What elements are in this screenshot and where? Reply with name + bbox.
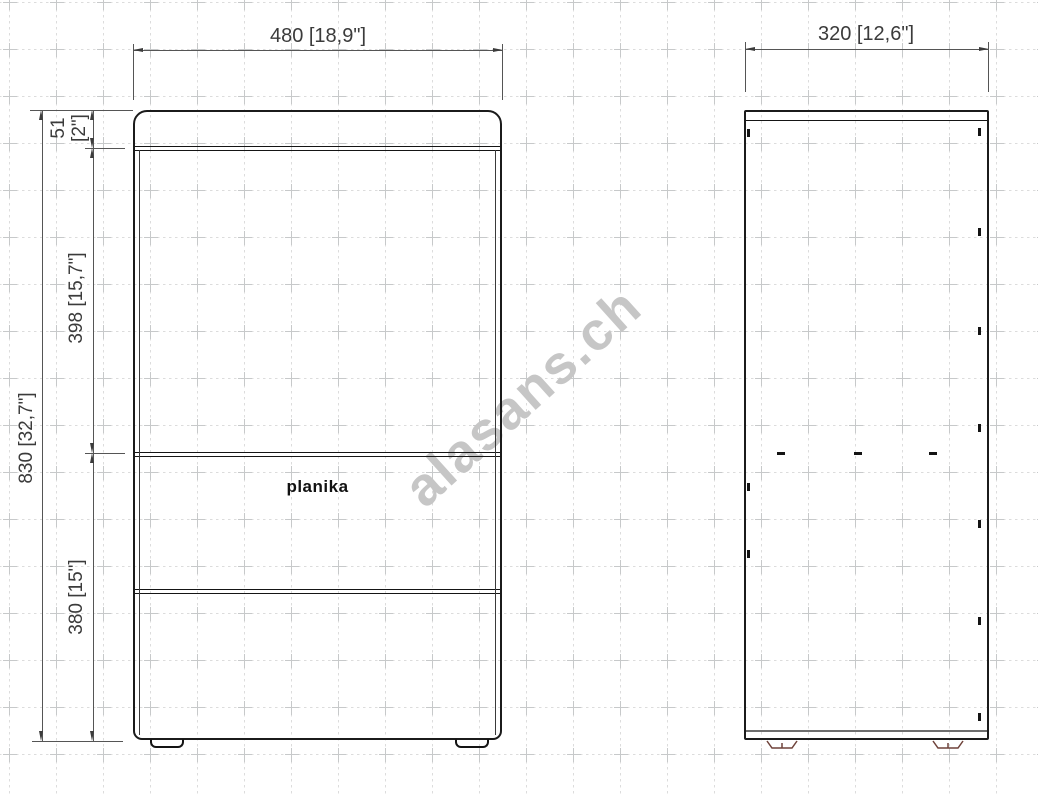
dim-label-bottom-section: 380 [15"] (66, 542, 88, 652)
dim-arrow-icon (493, 48, 503, 52)
dim-arrow-icon (979, 47, 989, 51)
front-foot-left (150, 739, 184, 748)
fixing-mark (777, 452, 785, 455)
dim-arrow-icon (39, 110, 43, 120)
dim-label-middle-section: 398 [15,7"] (66, 233, 88, 363)
dim-label-depth: 320 [12,6"] (766, 23, 966, 46)
front-view-outline: planika (133, 110, 502, 740)
front-top-panel-divider (135, 146, 500, 151)
side-foot-right (932, 740, 964, 751)
dim-label-top-section: 51 [2"] (48, 108, 90, 148)
vent-slot (978, 713, 981, 721)
vent-slot (978, 128, 981, 136)
front-inner-edge-left (139, 150, 140, 735)
dim-arrow-icon (90, 443, 94, 453)
front-inner-edge-right (495, 150, 496, 735)
side-foot-left (766, 740, 798, 751)
vent-slot (978, 327, 981, 335)
dim-arrow-icon (90, 138, 94, 148)
ext-line-bottom (32, 741, 123, 742)
dim-arrow-icon (39, 731, 43, 741)
dim-arrow-icon (133, 48, 143, 52)
side-top-edge-line (746, 120, 987, 121)
vent-slot (978, 424, 981, 432)
vent-slot (978, 520, 981, 528)
side-view-outline (744, 110, 989, 740)
dim-line-480 (133, 50, 503, 51)
planika-logo: planika (135, 477, 500, 497)
vent-slot (747, 129, 750, 137)
dim-label-total-height: 830 [32,7"] (16, 378, 38, 498)
side-bottom-edge-line (746, 730, 987, 732)
front-foot-right (455, 739, 489, 748)
ext-line-480-left (133, 44, 134, 100)
dim-arrow-icon (90, 110, 94, 120)
dim-label-top-section-in: [2"] (69, 108, 90, 148)
fixing-mark (854, 452, 862, 455)
dim-arrow-icon (90, 148, 94, 158)
vent-slot (978, 617, 981, 625)
vent-slot (747, 483, 750, 491)
dim-line-398 (93, 148, 94, 453)
dim-line-380 (93, 453, 94, 741)
dim-label-top-section-mm: 51 (48, 108, 69, 148)
ext-line-480-right (502, 44, 503, 100)
dim-arrow-icon (745, 47, 755, 51)
dim-label-width: 480 [18,9"] (218, 25, 418, 48)
dim-line-320 (745, 49, 989, 50)
dim-arrow-icon (90, 731, 94, 741)
dim-arrow-icon (90, 453, 94, 463)
fixing-mark (929, 452, 937, 455)
front-middle-panel-divider (135, 452, 500, 457)
vent-slot (978, 228, 981, 236)
vent-slot (747, 550, 750, 558)
dim-line-830 (42, 110, 43, 741)
front-lower-panel-divider (135, 589, 500, 594)
